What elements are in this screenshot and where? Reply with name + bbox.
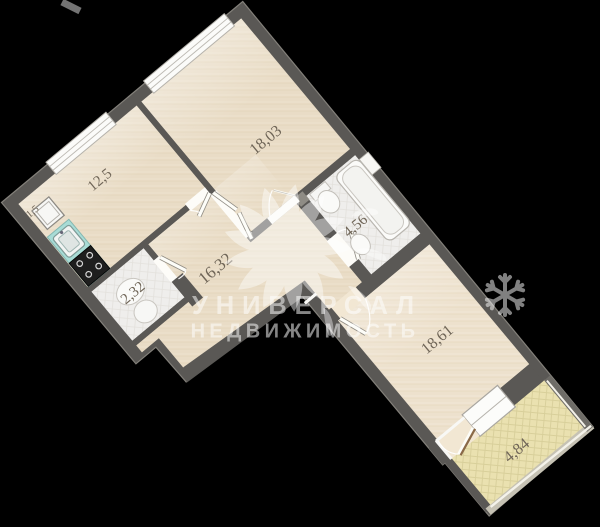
- svg-text:УНИВЕРСАЛ: УНИВЕРСАЛ: [192, 292, 422, 320]
- svg-text:НЕДВИЖИМОСТЬ: НЕДВИЖИМОСТЬ: [191, 321, 420, 343]
